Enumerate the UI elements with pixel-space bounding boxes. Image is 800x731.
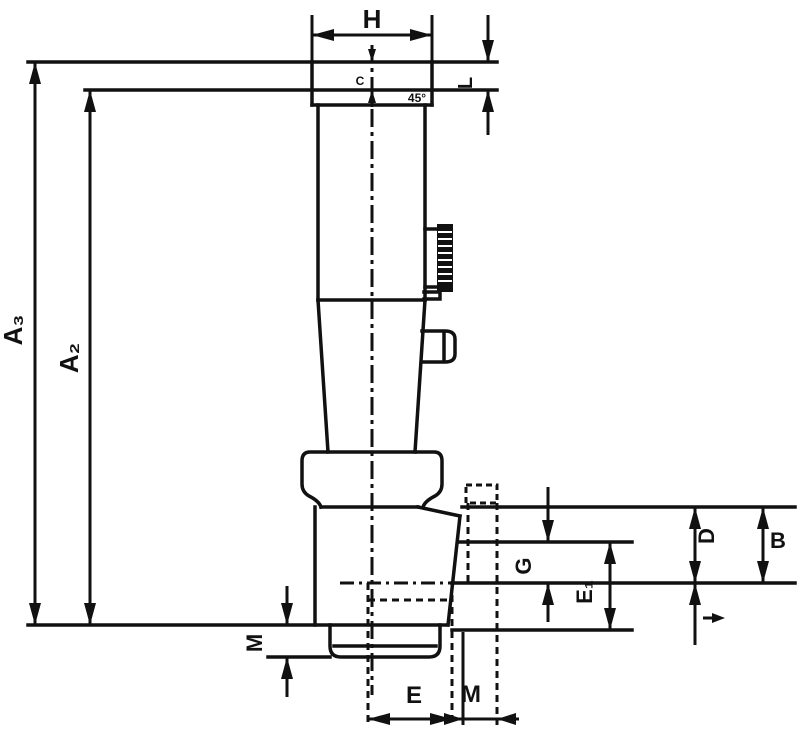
label-H: H [363, 4, 382, 34]
taper-right-edge [415, 300, 425, 452]
drawing-canvas: H L C 45° A₃ A₂ M G E₁ D B E M [0, 0, 800, 731]
small-right-arrow-icon [712, 613, 725, 623]
label-E: E [406, 682, 422, 709]
knurled-grip-strip [437, 224, 453, 292]
label-M-bottom: M [461, 681, 481, 708]
label-D: D [694, 528, 719, 544]
label-E1: E₁ [572, 580, 597, 604]
dimension-lines [35, 15, 763, 719]
body-chamfer [418, 507, 460, 516]
bottom-rim [330, 625, 440, 657]
label-A2: A₂ [54, 343, 84, 373]
dimension-labels: H L C 45° A₃ A₂ M G E₁ D B E M [0, 4, 786, 709]
label-L: L [455, 77, 477, 89]
label-45deg: 45° [408, 91, 426, 105]
label-C: C [356, 74, 365, 88]
technical-drawing: H L C 45° A₃ A₂ M G E₁ D B E M [0, 0, 800, 731]
taper-left-edge [318, 300, 328, 452]
body-right-edge [448, 516, 460, 625]
label-A3: A₃ [0, 315, 28, 346]
side-square-hidden [466, 485, 497, 503]
side-tab [422, 331, 455, 362]
label-M-side: M [242, 634, 267, 652]
part-outline [28, 62, 795, 657]
label-G: G [511, 557, 536, 574]
arrowheads [29, 29, 769, 725]
label-B: B [770, 528, 786, 553]
